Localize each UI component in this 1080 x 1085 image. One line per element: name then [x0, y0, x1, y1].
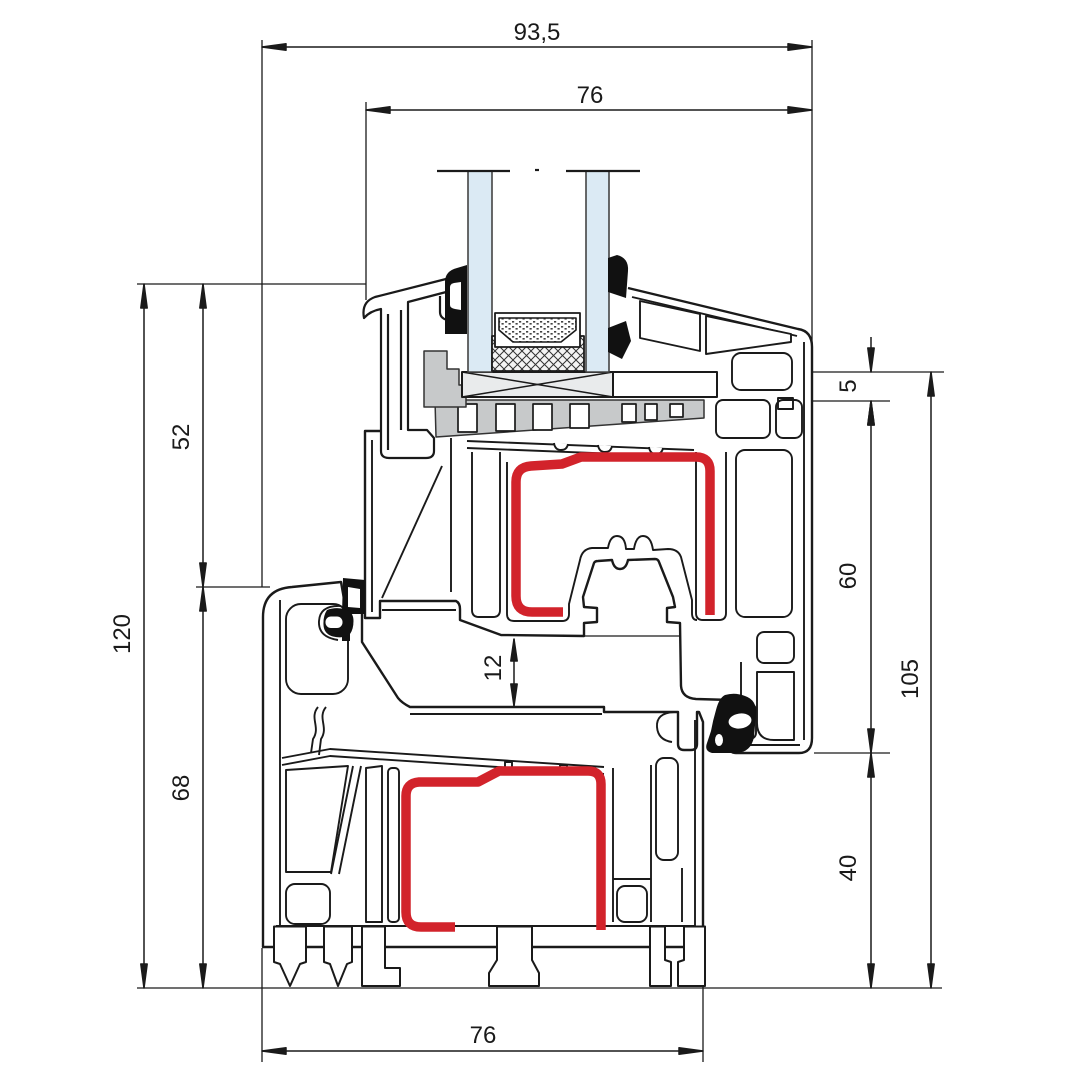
- svg-text:52: 52: [168, 424, 195, 451]
- svg-text:40: 40: [835, 855, 862, 882]
- svg-text:60: 60: [835, 563, 862, 590]
- svg-text:68: 68: [168, 775, 195, 802]
- svg-text:76: 76: [470, 1022, 497, 1049]
- svg-text:93,5: 93,5: [514, 19, 561, 46]
- svg-text:105: 105: [897, 659, 924, 699]
- svg-text:5: 5: [835, 379, 862, 392]
- svg-text:120: 120: [109, 614, 136, 654]
- svg-text:76: 76: [577, 82, 604, 109]
- svg-text:12: 12: [480, 655, 507, 682]
